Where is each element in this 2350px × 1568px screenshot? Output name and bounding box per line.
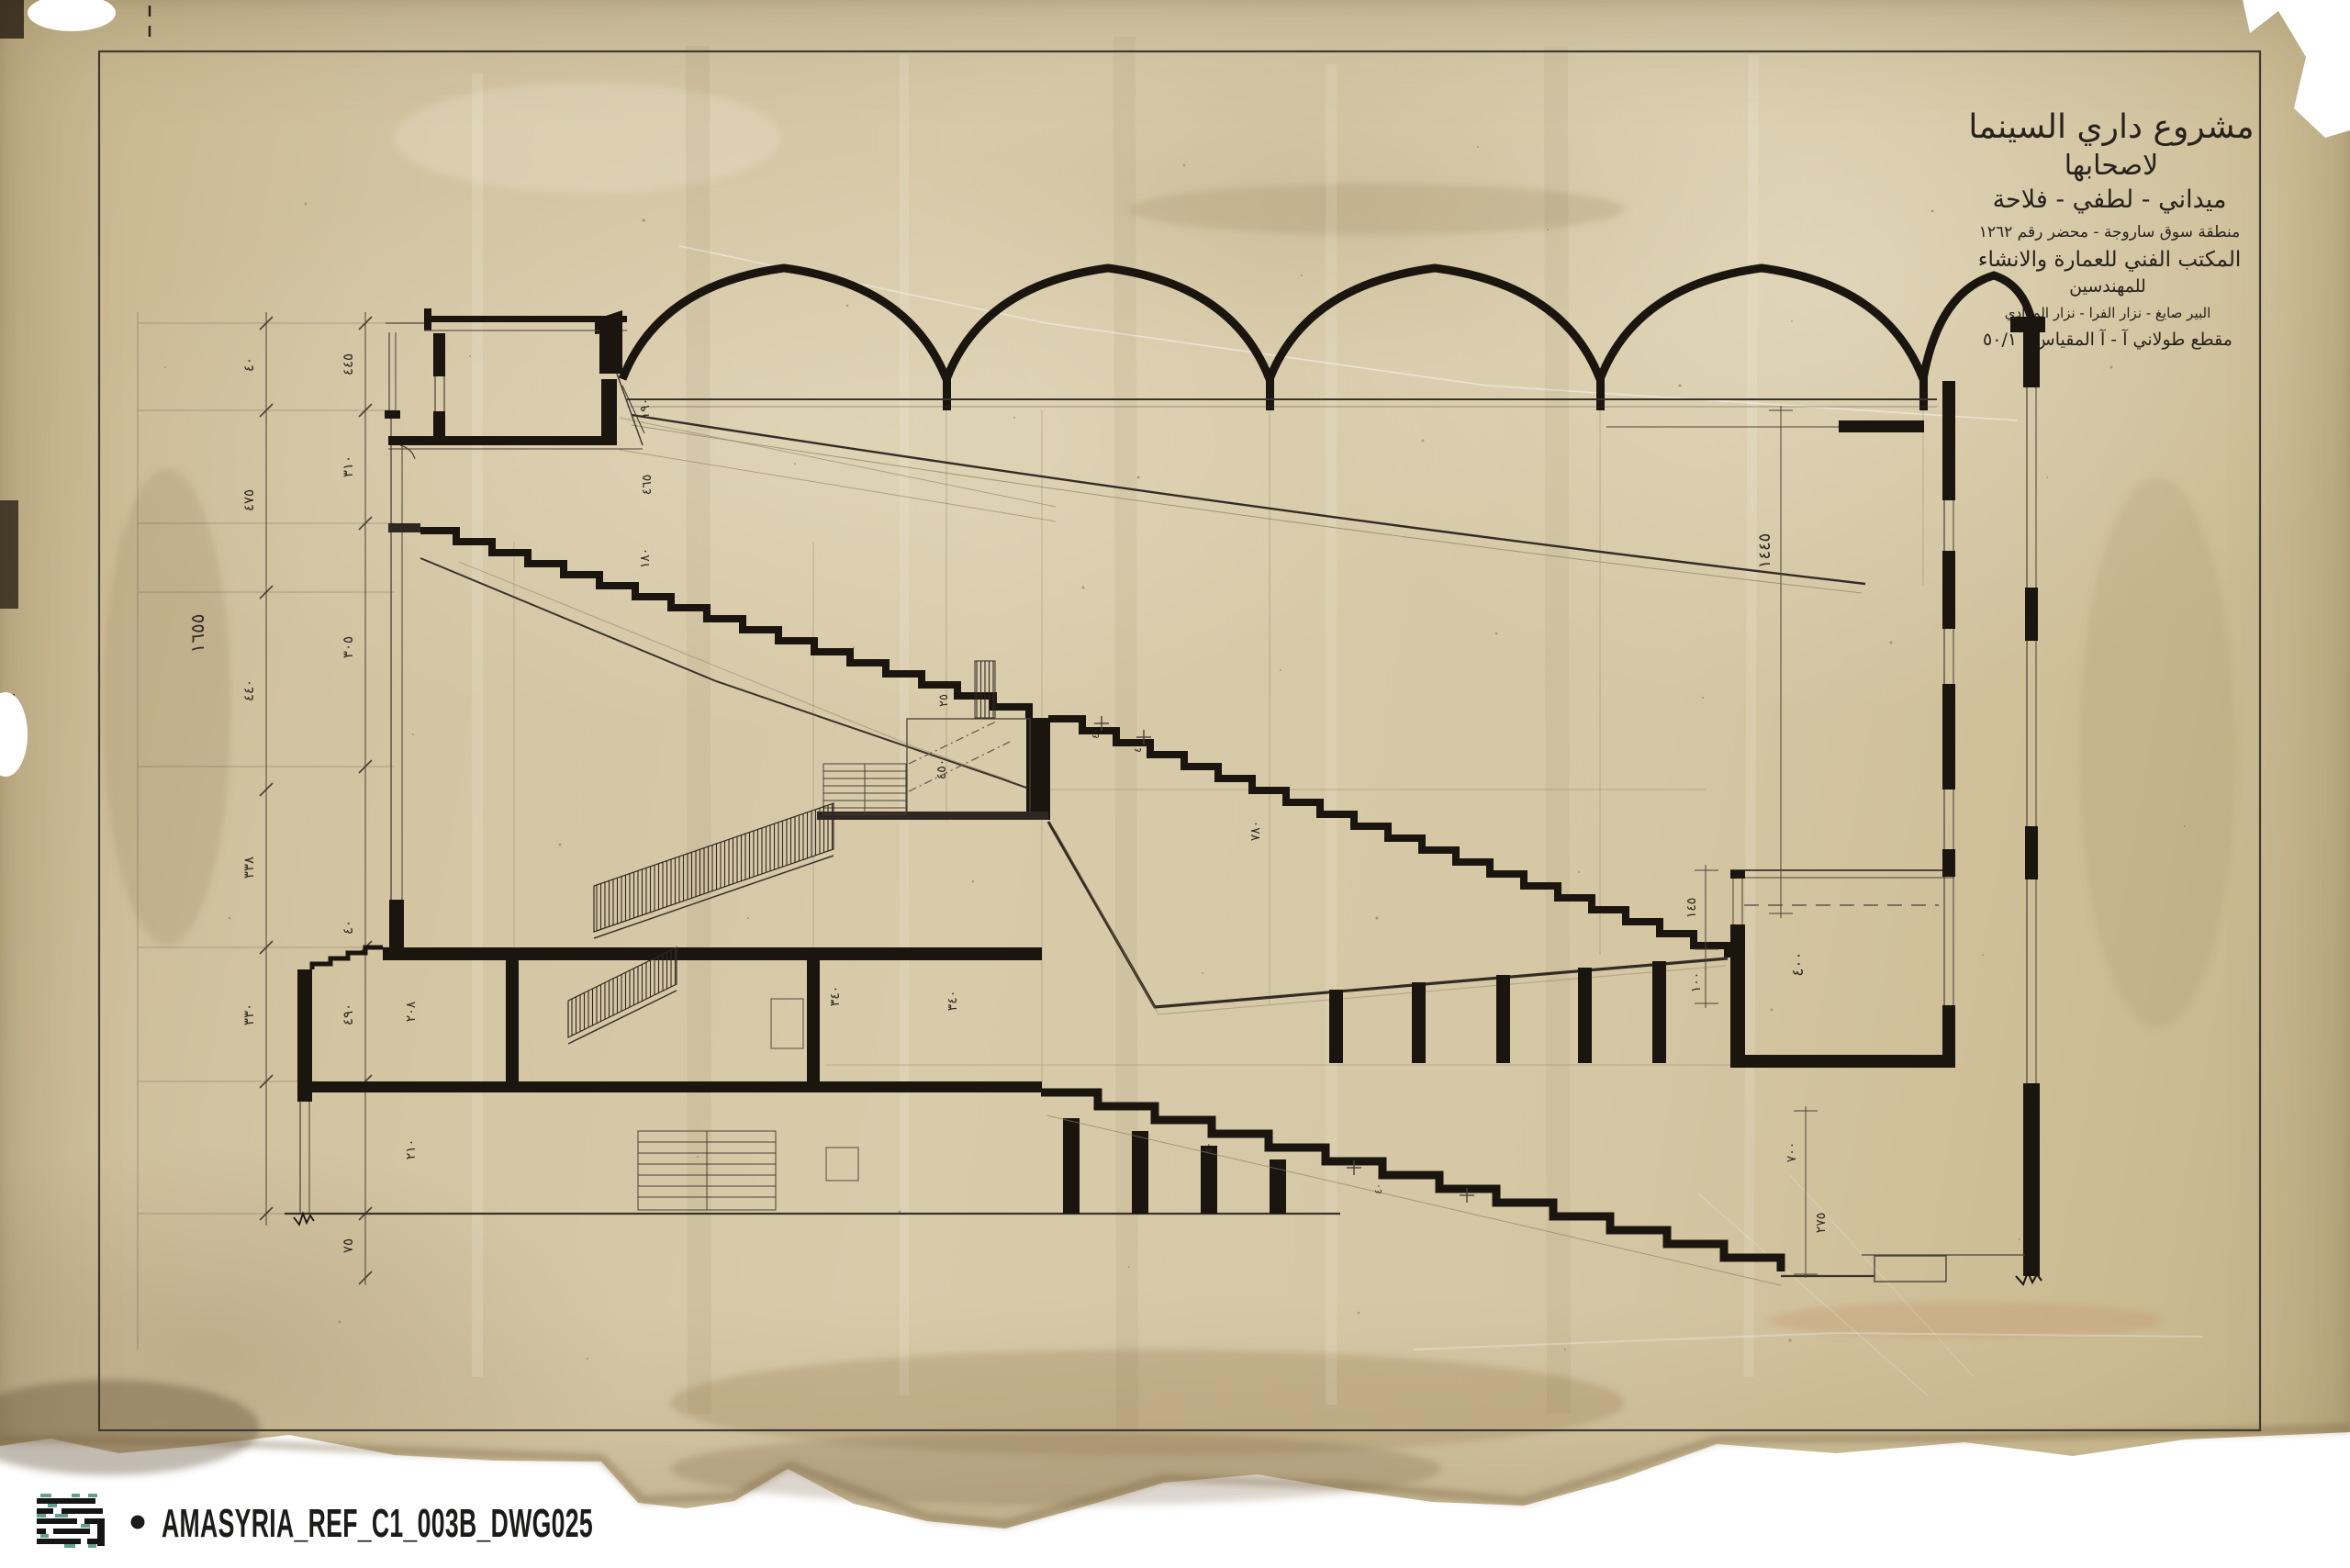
orchestra-floor bbox=[1041, 1092, 2025, 1285]
orchestra-soffit bbox=[1046, 1115, 1781, 1285]
stair-dashed-flight bbox=[909, 722, 1010, 791]
stair-railing-mid bbox=[568, 947, 677, 1037]
svg-text:٣٤٠: ٣٤٠ bbox=[828, 986, 843, 1007]
balcony-soffit bbox=[420, 558, 1026, 788]
ceiling-ledge bbox=[1839, 420, 1924, 432]
title-line-1: مشروع داري السينما bbox=[1968, 108, 2254, 146]
svg-text:٢٥: ٢٥ bbox=[937, 694, 951, 707]
break-symbol bbox=[2016, 1272, 2042, 1284]
svg-text:٤٠: ٤٠ bbox=[1203, 1142, 1214, 1153]
svg-text:٧٨٠: ٧٨٠ bbox=[1248, 821, 1263, 842]
basement-stair-treads bbox=[638, 1131, 776, 1210]
balcony-steps bbox=[388, 523, 1050, 820]
stair-cage bbox=[817, 719, 1048, 820]
svg-text:٤٠: ٤٠ bbox=[340, 920, 356, 935]
tape-spot bbox=[0, 500, 18, 609]
left-facade bbox=[385, 332, 404, 947]
canopy-edge bbox=[385, 410, 400, 419]
title-line-3: ميداني - لطفي - فلاحة bbox=[1993, 185, 2227, 214]
svg-text:٧٥: ٧٥ bbox=[340, 1238, 356, 1253]
stair-treads-front bbox=[823, 764, 906, 814]
hall-ceiling bbox=[627, 399, 1937, 432]
svg-text:٤٤٠: ٤٤٠ bbox=[241, 679, 257, 701]
arch-posts bbox=[595, 310, 2045, 410]
building-section: ١٩٠ ٤٦٥ ١٨٠ ٢٥ ٤٥٠ ٣٤٠ ٣٤٠ ٤٠ ٤٠ ٧٨٠ ١٤٥… bbox=[285, 268, 2045, 1285]
title-line-4: منطقة سوق ساروجة - محضر رقم ١٢٦٢ bbox=[1979, 223, 2241, 241]
svg-text:٤٠: ٤٠ bbox=[1090, 728, 1102, 739]
svg-text:٤٠: ٤٠ bbox=[1132, 742, 1144, 753]
sheet-border-frame bbox=[99, 51, 2260, 1430]
svg-text:٤٠: ٤٠ bbox=[1372, 1183, 1384, 1194]
orchestra-step-profile bbox=[1041, 1092, 1781, 1271]
svg-text:٤٠: ٤٠ bbox=[241, 357, 257, 372]
svg-text:٣٠٥: ٣٠٥ bbox=[340, 636, 356, 658]
crease bbox=[679, 246, 2018, 420]
svg-text:٤٦٥: ٤٦٥ bbox=[640, 475, 655, 496]
svg-text:١٨٠: ١٨٠ bbox=[638, 548, 653, 569]
balcony-railing bbox=[975, 661, 995, 718]
columns-under-raked-floor bbox=[1329, 961, 1666, 1063]
entrance-steps bbox=[312, 947, 383, 969]
upper-hall-raked-floor bbox=[1048, 719, 1728, 1063]
basement-left-wall bbox=[297, 969, 312, 1102]
svg-text:١٩٠: ١٩٠ bbox=[638, 398, 653, 420]
torn-spot bbox=[0, 692, 28, 777]
stage-room bbox=[1730, 870, 1954, 1068]
sightline-curves bbox=[620, 415, 1865, 593]
bullet-point bbox=[131, 1516, 145, 1529]
upper-raked-step-profile bbox=[1048, 719, 1728, 958]
svg-text:٣٤٠: ٣٤٠ bbox=[946, 991, 960, 1012]
chain-total: ١٦٥٥ bbox=[186, 614, 208, 654]
column bbox=[807, 960, 820, 1081]
svg-text:٣٣٨: ٣٣٨ bbox=[241, 857, 257, 879]
amasyria-logo bbox=[37, 1494, 105, 1548]
column bbox=[506, 960, 519, 1081]
svg-text:٤٧٥: ٤٧٥ bbox=[241, 489, 257, 511]
right-walls bbox=[1942, 332, 2042, 1284]
title-line-2: لاصحابها bbox=[2065, 150, 2158, 182]
torn-spot bbox=[28, 0, 116, 31]
arch-springer-right bbox=[2010, 317, 2045, 332]
break-symbol bbox=[294, 1214, 314, 1225]
balcony-step-profile bbox=[420, 531, 1029, 718]
title-line-6: للمهندسين bbox=[2069, 276, 2146, 297]
foyer-mezzanine bbox=[303, 803, 1042, 1181]
svg-text:١٠٠: ١٠٠ bbox=[1689, 972, 1704, 993]
mezzanine-slab bbox=[383, 947, 1042, 960]
svg-text:٤٩٠: ٤٩٠ bbox=[340, 1003, 356, 1025]
svg-text:١٤٥: ١٤٥ bbox=[1684, 898, 1699, 919]
svg-text:٣١٠: ٣١٠ bbox=[340, 455, 356, 477]
stage-room-floor bbox=[1735, 1055, 1954, 1068]
ground-slab bbox=[303, 1081, 1042, 1092]
svg-text:٢٧٥: ٢٧٥ bbox=[1814, 1213, 1829, 1234]
reference-label: AMASYRIA_REF_C1_003B_DWG025 bbox=[162, 1501, 593, 1546]
projection-room bbox=[386, 308, 644, 459]
title-line-5: المكتب الفني للعمارة والانشاء bbox=[1978, 248, 2242, 272]
tape-spot bbox=[0, 0, 24, 39]
svg-text:٢٠٨: ٢٠٨ bbox=[404, 1001, 419, 1022]
svg-text:٤٠٠: ٤٠٠ bbox=[1789, 951, 1807, 976]
construction-lines bbox=[514, 409, 1942, 1088]
svg-text:٤٥٠: ٤٥٠ bbox=[934, 759, 949, 780]
drawing-scan: مشروع داري السينما لاصحابها ميداني - لطف… bbox=[0, 0, 2350, 1568]
svg-text:١٤٤٥: ١٤٤٥ bbox=[1755, 533, 1774, 569]
footer-row: AMASYRIA_REF_C1_003B_DWG025 bbox=[37, 1494, 593, 1548]
svg-text:٤٤٥: ٤٤٥ bbox=[340, 353, 356, 375]
title-block: مشروع داري السينما لاصحابها ميداني - لطف… bbox=[1968, 108, 2254, 350]
pit-detail-box bbox=[1874, 1256, 1946, 1282]
pencil-box bbox=[826, 1148, 858, 1181]
svg-text:٢١٠: ٢١٠ bbox=[404, 1139, 419, 1160]
svg-text:٧٠٠: ٧٠٠ bbox=[1785, 1142, 1799, 1163]
pencil-box bbox=[771, 999, 803, 1048]
svg-text:٣٣٠: ٣٣٠ bbox=[241, 1003, 257, 1025]
